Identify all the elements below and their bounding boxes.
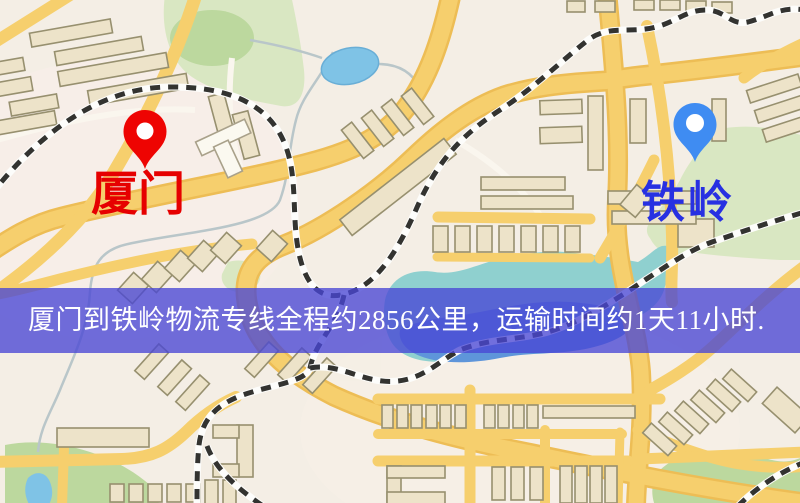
destination-pin-icon	[672, 102, 718, 164]
origin-city-label: 厦门	[91, 172, 185, 219]
destination-pin	[672, 102, 718, 169]
route-info-text: 厦门到铁岭物流专线全程约2856公里，运输时间约1天11小时.	[0, 307, 765, 334]
destination-city-label: 铁岭	[641, 181, 735, 225]
map-artwork	[0, 0, 800, 503]
map-screenshot: 厦门 铁岭 厦门到铁岭物流专线全程约2856公里，运输时间约1天11小时.	[0, 0, 800, 503]
route-info-banner: 厦门到铁岭物流专线全程约2856公里，运输时间约1天11小时.	[0, 288, 800, 353]
origin-pin-icon	[122, 109, 168, 171]
origin-pin	[122, 109, 168, 176]
